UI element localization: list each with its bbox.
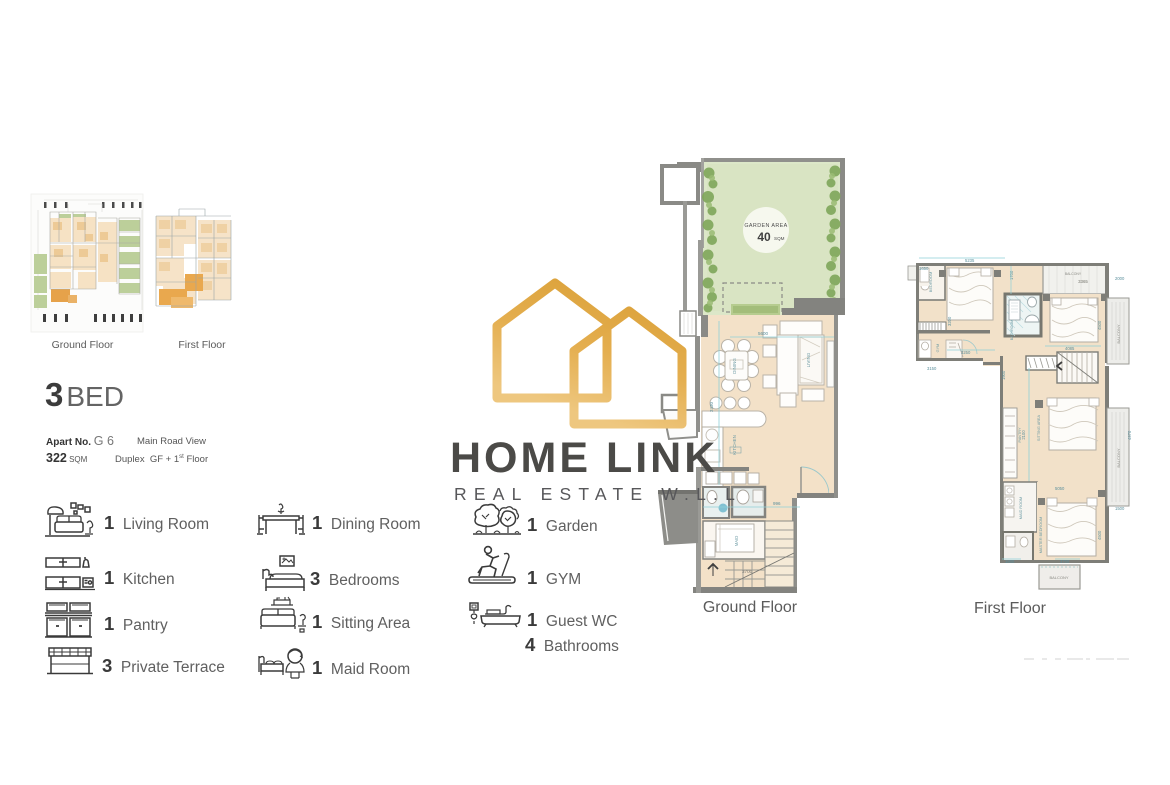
svg-text:4500: 4500: [1097, 320, 1102, 330]
svg-text:GYM: GYM: [936, 344, 940, 353]
svg-text:4970: 4970: [1127, 430, 1132, 440]
svg-text:3200: 3200: [947, 316, 952, 326]
svg-text:BEDROOM: BEDROOM: [928, 272, 933, 293]
svg-text:4085: 4085: [1065, 346, 1075, 351]
svg-text:5600: 5600: [758, 331, 769, 336]
svg-text:1650: 1650: [919, 266, 929, 271]
svg-text:3250: 3250: [961, 350, 971, 355]
svg-text:3700: 3700: [1060, 559, 1070, 564]
svg-text:KITCHEN: KITCHEN: [732, 435, 737, 455]
svg-text:2100: 2100: [1021, 430, 1026, 440]
svg-text:SQM: SQM: [774, 236, 785, 241]
svg-text:MASTER BEDROOM: MASTER BEDROOM: [1039, 517, 1043, 554]
svg-text:1700: 1700: [1009, 270, 1014, 280]
svg-text:GARDEN AREA: GARDEN AREA: [744, 223, 787, 229]
svg-text:1500: 1500: [1115, 506, 1125, 511]
svg-text:BALCONY: BALCONY: [1049, 575, 1068, 580]
svg-text:BALCONY: BALCONY: [1065, 272, 1082, 276]
svg-text:1900: 1900: [1001, 370, 1006, 380]
svg-text:2000: 2000: [1115, 276, 1125, 281]
svg-text:3150: 3150: [927, 366, 937, 371]
svg-text:DINING: DINING: [732, 358, 737, 374]
svg-text:BALCONY: BALCONY: [1116, 324, 1121, 343]
svg-text:SITTING AREA: SITTING AREA: [1037, 414, 1041, 441]
svg-text:3700: 3700: [742, 569, 753, 574]
svg-text:MAID ROOM: MAID ROOM: [1019, 497, 1023, 519]
svg-text:5050: 5050: [1055, 486, 1065, 491]
svg-text:996: 996: [773, 501, 781, 506]
svg-text:3365: 3365: [1078, 279, 1088, 284]
svg-text:40: 40: [757, 230, 771, 244]
svg-text:BALCONY: BALCONY: [1116, 448, 1121, 467]
svg-text:5235: 5235: [965, 258, 975, 263]
svg-text:4500: 4500: [1097, 530, 1102, 540]
svg-text:1800: 1800: [1005, 559, 1015, 564]
svg-text:BATHROOM: BATHROOM: [1010, 320, 1014, 341]
svg-text:MAID: MAID: [734, 536, 739, 546]
svg-text:LIVING: LIVING: [806, 352, 811, 367]
